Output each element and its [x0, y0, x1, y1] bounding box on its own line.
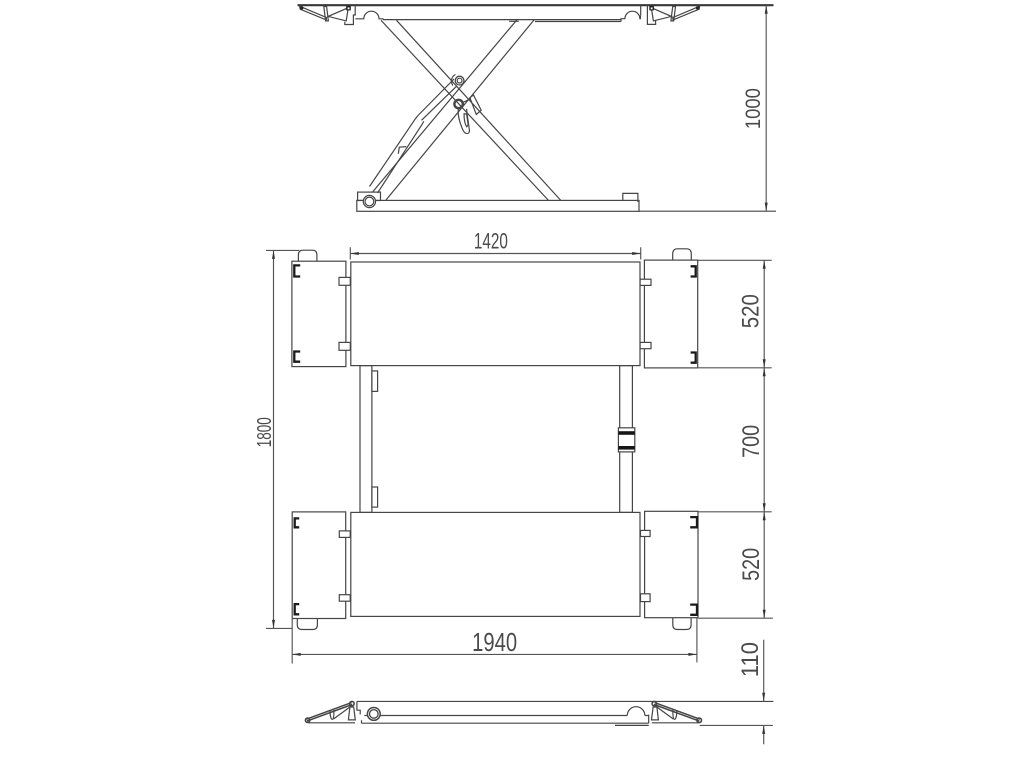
svg-text:1000: 1000 — [742, 88, 765, 129]
svg-text:110: 110 — [737, 642, 764, 677]
svg-text:520: 520 — [738, 548, 765, 581]
svg-text:1420: 1420 — [474, 229, 508, 254]
svg-text:700: 700 — [738, 425, 765, 458]
svg-text:520: 520 — [738, 294, 765, 328]
svg-text:1800: 1800 — [254, 417, 276, 447]
svg-text:1940: 1940 — [472, 629, 517, 657]
